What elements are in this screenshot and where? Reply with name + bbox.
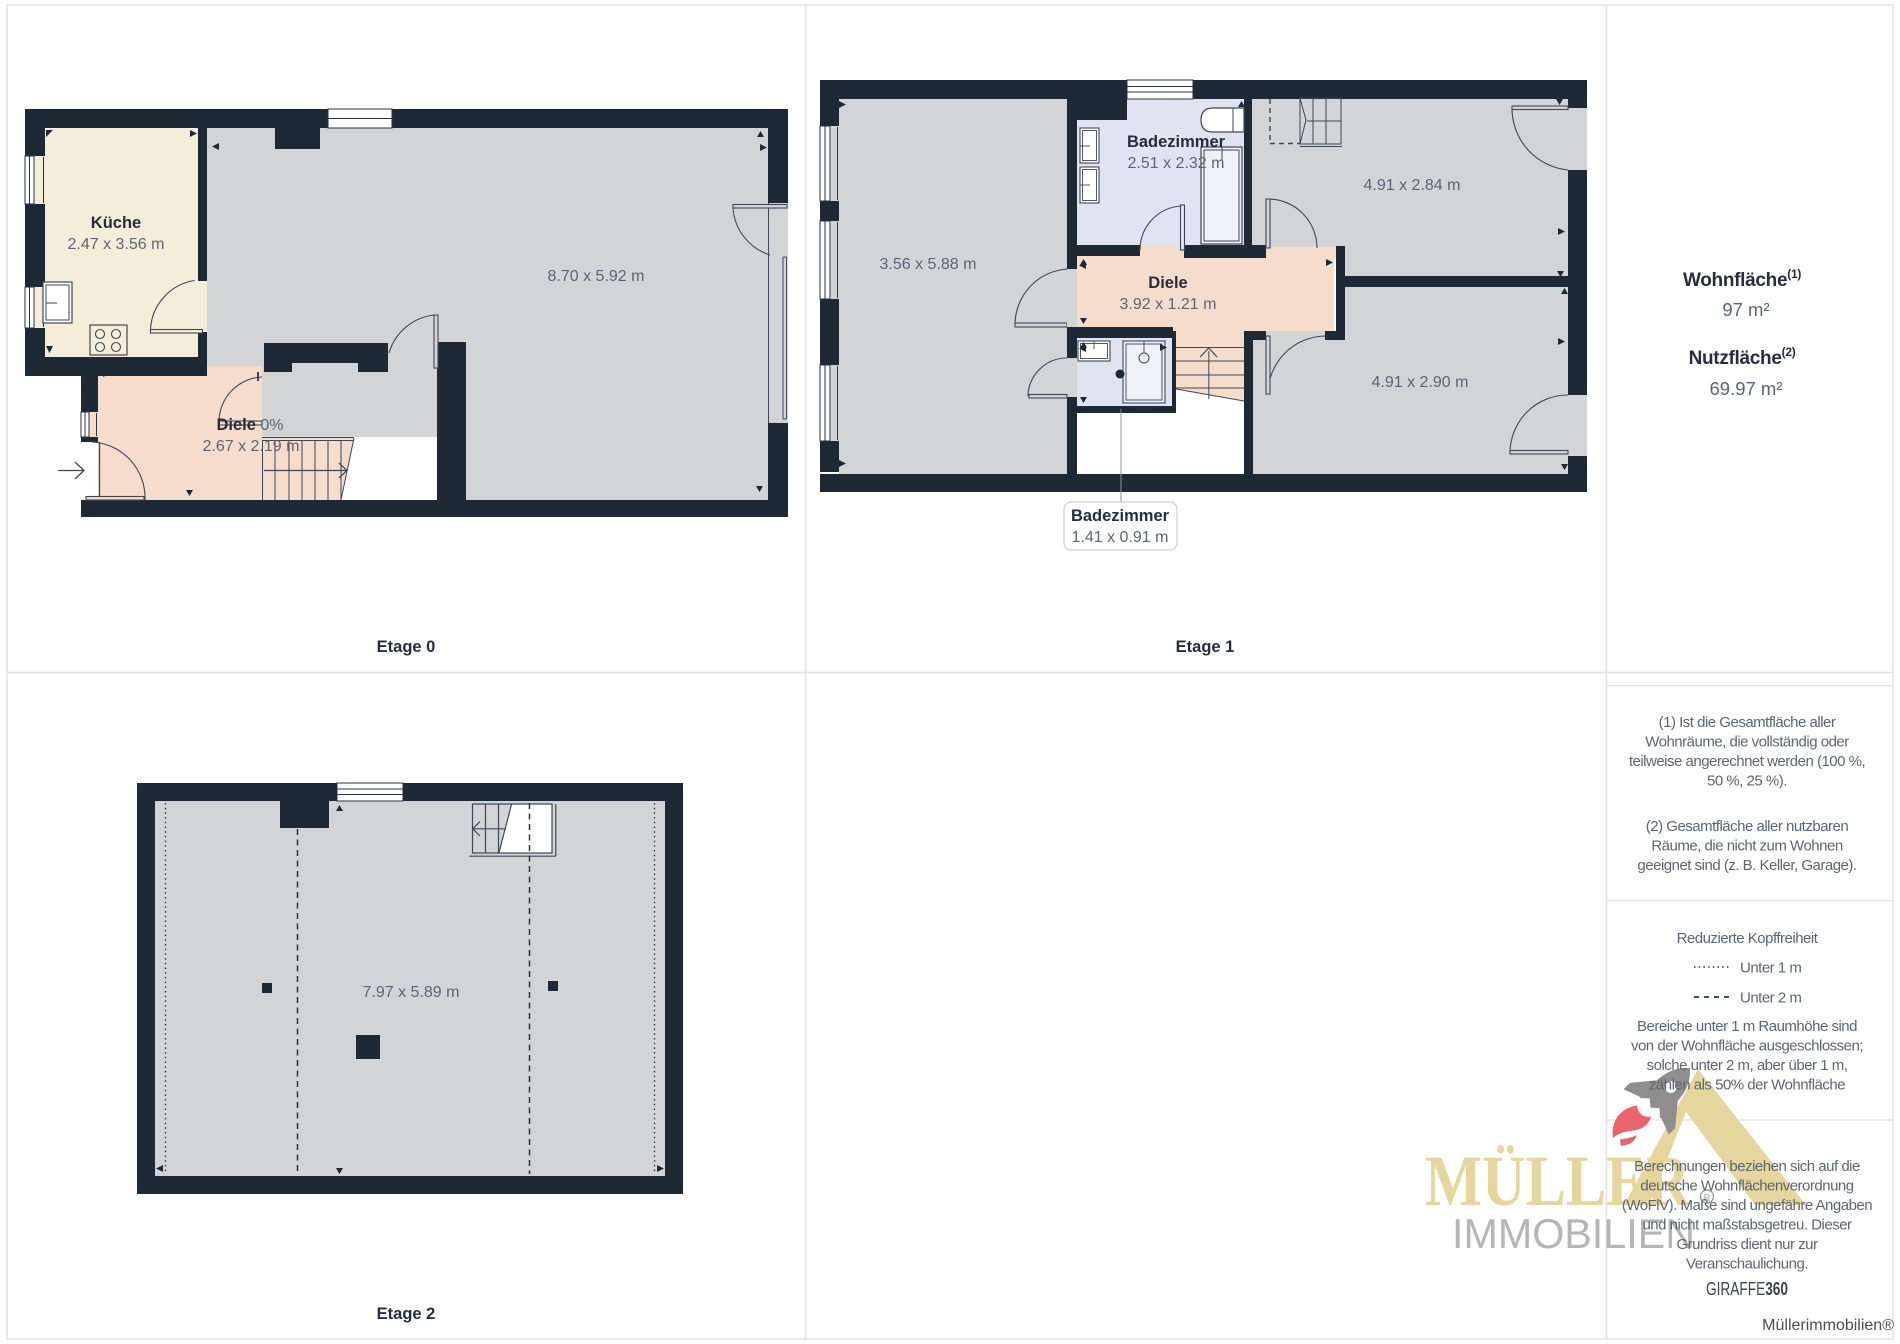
- svg-text:8.70 x 5.92 m: 8.70 x 5.92 m: [548, 268, 645, 285]
- svg-text:(1) Ist die Gesamtfläche aller: (1) Ist die Gesamtfläche aller: [1659, 714, 1836, 731]
- svg-text:Etage 1: Etage 1: [1176, 638, 1235, 656]
- svg-text:(2) Gesamtfläche aller nutzbar: (2) Gesamtfläche aller nutzbaren: [1646, 818, 1849, 835]
- svg-text:3.92 x 1.21 m: 3.92 x 1.21 m: [1120, 296, 1217, 313]
- svg-text:Unter 1 m: Unter 1 m: [1740, 960, 1801, 977]
- svg-text:(WoFlV). Maße sind ungefähre A: (WoFlV). Maße sind ungefähre Angaben: [1622, 1197, 1872, 1214]
- svg-text:Berechnungen beziehen sich auf: Berechnungen beziehen sich auf die: [1634, 1158, 1860, 1175]
- svg-text:Wohnfläche(1): Wohnfläche(1): [1683, 267, 1801, 291]
- svg-text:2.67 x 2.19 m: 2.67 x 2.19 m: [203, 438, 300, 455]
- svg-text:deutsche Wohnflächenverordnung: deutsche Wohnflächenverordnung: [1640, 1178, 1853, 1195]
- svg-text:69.97 m²: 69.97 m²: [1709, 378, 1782, 399]
- svg-text:Unter 2 m: Unter 2 m: [1740, 990, 1801, 1007]
- svg-text:Wohnräume, die vollständig ode: Wohnräume, die vollständig oder: [1645, 734, 1849, 751]
- svg-text:Räume, die nicht zum Wohnen: Räume, die nicht zum Wohnen: [1651, 838, 1842, 855]
- svg-text:Badezimmer: Badezimmer: [1127, 133, 1226, 151]
- svg-text:4.91 x 2.84 m: 4.91 x 2.84 m: [1364, 177, 1461, 194]
- svg-text:Etage 2: Etage 2: [377, 1305, 436, 1323]
- svg-text:3.56 x 5.88 m: 3.56 x 5.88 m: [880, 256, 977, 273]
- svg-text:zählen als 50% der Wohnfläche: zählen als 50% der Wohnfläche: [1649, 1077, 1845, 1094]
- svg-text:4.91 x 2.90 m: 4.91 x 2.90 m: [1372, 374, 1469, 391]
- svg-text:Veranschaulichung.: Veranschaulichung.: [1686, 1256, 1808, 1273]
- svg-text:geeignet sind (z. B. Keller, G: geeignet sind (z. B. Keller, Garage).: [1637, 857, 1856, 874]
- svg-text:teilweise angerechnet werden (: teilweise angerechnet werden (100 %,: [1629, 753, 1865, 770]
- svg-text:Badezimmer: Badezimmer: [1071, 507, 1170, 525]
- svg-text:50 %, 25 %).: 50 %, 25 %).: [1707, 773, 1787, 790]
- svg-text:97 m²: 97 m²: [1722, 299, 1769, 320]
- svg-text:Diele: Diele: [1148, 274, 1187, 292]
- svg-text:1.41 x 0.91 m: 1.41 x 0.91 m: [1072, 529, 1169, 546]
- svg-text:solche unter 2 m, aber über 1: solche unter 2 m, aber über 1 m,: [1647, 1057, 1848, 1074]
- svg-text:von der Wohnfläche ausgeschlos: von der Wohnfläche ausgeschlossen;: [1631, 1038, 1863, 1055]
- svg-text:2.51 x 2.32 m: 2.51 x 2.32 m: [1128, 155, 1225, 172]
- svg-text:Nutzfläche(2): Nutzfläche(2): [1689, 345, 1796, 369]
- svg-text:Müllerimmobilien®: Müllerimmobilien®: [1762, 1317, 1894, 1334]
- svg-text:und nicht maßstabsgetreu. Dies: und nicht maßstabsgetreu. Dieser: [1642, 1217, 1852, 1234]
- svg-text:Etage 0: Etage 0: [377, 638, 436, 656]
- svg-text:GIRAFFE360: GIRAFFE360: [1706, 1278, 1788, 1299]
- svg-text:Diele 0%: Diele 0%: [216, 416, 283, 434]
- svg-text:2.47 x 3.56 m: 2.47 x 3.56 m: [68, 236, 165, 253]
- svg-text:Bereiche unter 1 m Raumhöhe si: Bereiche unter 1 m Raumhöhe sind: [1637, 1018, 1857, 1035]
- svg-text:7.97 x 5.89 m: 7.97 x 5.89 m: [363, 984, 460, 1001]
- svg-text:Küche: Küche: [91, 214, 141, 232]
- svg-text:Reduzierte Kopffreiheit: Reduzierte Kopffreiheit: [1677, 930, 1819, 947]
- svg-text:Grundriss dient nur zur: Grundriss dient nur zur: [1676, 1236, 1818, 1253]
